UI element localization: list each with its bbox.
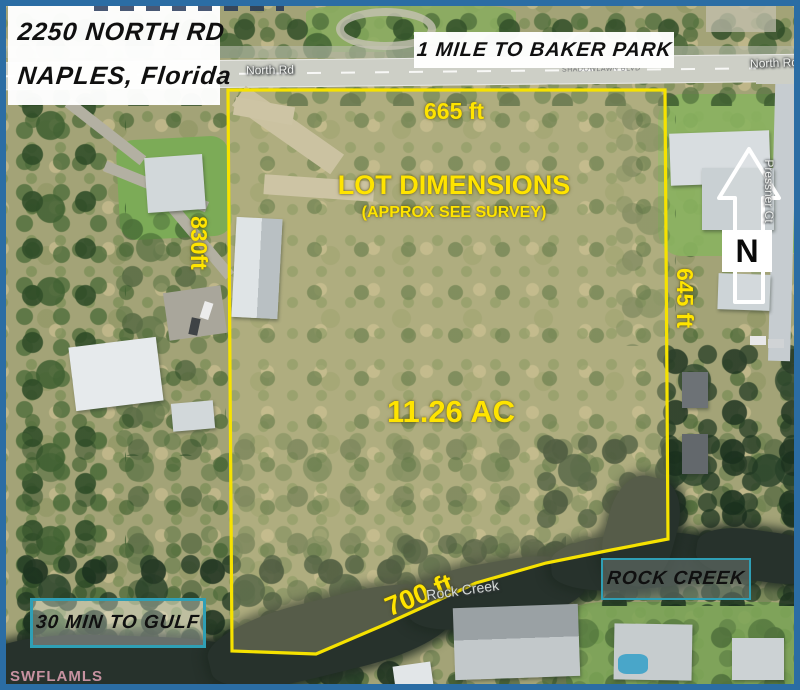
rock-creek-text: ROCK CREEK xyxy=(606,568,746,590)
address-line1: 2250 NORTH RD xyxy=(16,10,223,54)
car xyxy=(768,339,784,348)
dimension-top: 665 ft xyxy=(424,98,484,125)
lot-dimensions-subheading: (APPROX SEE SURVEY) xyxy=(314,204,594,222)
lot-acreage: 11.26 AC xyxy=(351,394,551,430)
dimension-left: 830ft xyxy=(184,188,214,298)
swimming-pool xyxy=(618,654,648,674)
cropped-text-fragment xyxy=(94,6,284,11)
north-road-label-right: North Rd xyxy=(750,55,794,71)
car xyxy=(750,336,766,345)
aerial-photo: N 665 ft LOT DIMENSIONS (APPROX SEE SURV… xyxy=(6,6,794,684)
house-roof xyxy=(68,337,163,411)
mls-watermark: SWFLAMLS xyxy=(10,668,103,684)
baker-park-callout: 1 MILE TO BAKER PARK xyxy=(414,32,674,68)
house-roof xyxy=(717,273,770,311)
house-roof xyxy=(393,661,434,684)
house-roof xyxy=(732,638,784,680)
shed-roof xyxy=(682,434,708,474)
shed-roof xyxy=(682,372,708,408)
address-line2: NAPLES, Florida xyxy=(16,54,223,98)
gulf-text: 30 MIN TO GULF xyxy=(35,612,201,634)
shed-roof xyxy=(171,400,215,432)
driveway xyxy=(706,6,776,32)
listing-photo-frame: N 665 ft LOT DIMENSIONS (APPROX SEE SURV… xyxy=(0,0,800,690)
barn-building xyxy=(231,217,282,319)
address-card: 2250 NORTH RD NAPLES, Florida xyxy=(8,6,220,105)
side-street-label: Pressner Ct xyxy=(759,121,779,261)
north-road-label-left: North Rd xyxy=(246,63,294,78)
compass-letter: N xyxy=(735,233,758,270)
rock-creek-callout: ROCK CREEK xyxy=(601,558,751,600)
dimension-right: 645 ft xyxy=(670,243,700,353)
baker-park-text: 1 MILE TO BAKER PARK xyxy=(415,39,672,62)
lot-dimensions-heading: LOT DIMENSIONS xyxy=(314,170,594,201)
house-roof xyxy=(453,604,580,680)
gulf-callout: 30 MIN TO GULF xyxy=(30,598,206,648)
